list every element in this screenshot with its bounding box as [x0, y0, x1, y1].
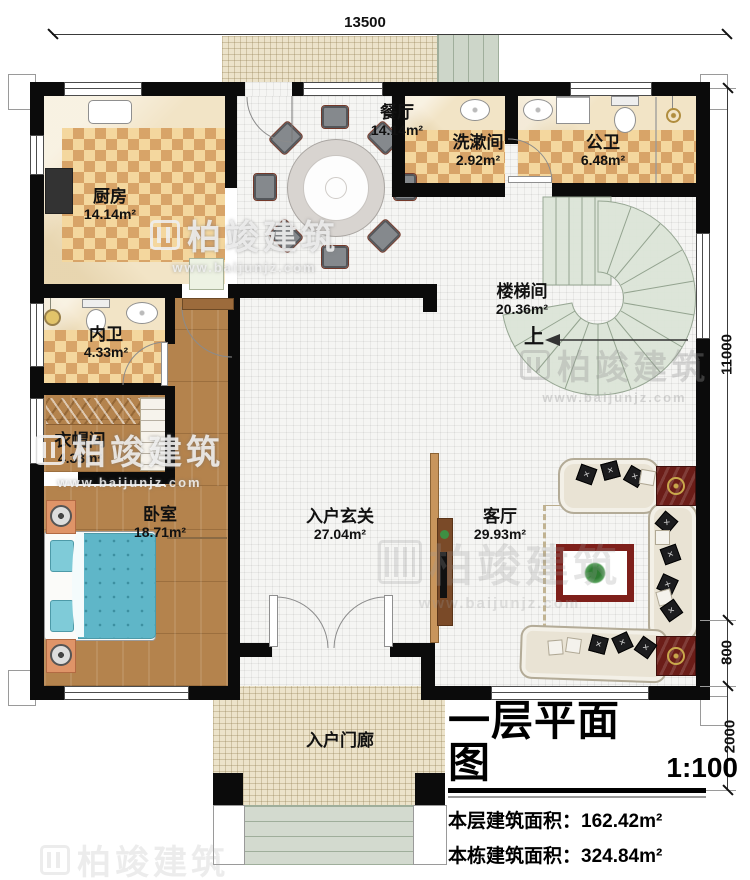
- wall: [696, 82, 710, 700]
- table-ring: [667, 647, 685, 665]
- room-label-public-bath: 公卫6.48m²: [545, 134, 661, 168]
- plant: [584, 562, 606, 584]
- watermark-logo-icon: [40, 845, 70, 875]
- public-toilet-bowl: [614, 107, 636, 133]
- tv: [440, 552, 447, 598]
- dining-chair: [254, 174, 276, 200]
- wall: [240, 643, 272, 657]
- fridge: [189, 258, 224, 290]
- wall: [552, 183, 696, 197]
- side-table: [656, 466, 696, 506]
- wall: [423, 284, 437, 312]
- wall: [78, 472, 165, 484]
- wall: [165, 386, 175, 484]
- bed-pillow: [50, 600, 74, 632]
- plan-scale: 1:100: [666, 752, 738, 784]
- washing-machine: [556, 96, 590, 124]
- public-bath-sink: [523, 99, 553, 121]
- washroom-sink: [460, 99, 490, 121]
- pillow: [639, 469, 656, 486]
- nightstand-lamp: [50, 644, 72, 666]
- dimension-label-right-upper: 11000: [719, 325, 736, 385]
- entry-door-leaf: [384, 595, 393, 647]
- steps-side-right: [413, 805, 447, 865]
- dimension-extension: [710, 88, 736, 89]
- porch-column: [213, 773, 243, 805]
- stat-total-area: 本栋建筑面积：324.84m²: [448, 841, 738, 868]
- cloak-shelf: [140, 397, 167, 471]
- room-label-kitchen: 厨房14.14m²: [50, 188, 170, 222]
- room-label-dining: 餐厅14.14m²: [337, 104, 457, 138]
- bath-lamp: [44, 309, 61, 326]
- pillow: [565, 637, 582, 654]
- dining-chair: [322, 246, 348, 268]
- dining-table-center: [325, 177, 347, 199]
- wall: [30, 284, 182, 298]
- wood-door-leaf: [182, 298, 234, 310]
- bed-duvet: [78, 533, 156, 639]
- window: [30, 135, 44, 175]
- private-bath-sink: [126, 302, 158, 324]
- room-label-porch: 入户门廊: [270, 732, 410, 750]
- pillow: [655, 530, 670, 545]
- door-leaf: [508, 176, 552, 183]
- window: [64, 686, 189, 700]
- wall: [30, 383, 165, 395]
- nightstand-lamp: [50, 505, 72, 527]
- room-label-washroom: 洗漱间2.92m²: [420, 134, 536, 168]
- window: [30, 303, 44, 367]
- wall: [228, 284, 240, 700]
- wall: [392, 183, 505, 197]
- duvet-fold: [72, 533, 84, 637]
- window: [64, 82, 142, 96]
- wall: [228, 284, 437, 298]
- window: [570, 82, 652, 96]
- bed-pillow: [50, 540, 74, 572]
- steps-side-left: [213, 805, 245, 865]
- entry-steps: [243, 805, 415, 865]
- kitchen-sink: [88, 100, 132, 124]
- floor-plan-canvas: 厨房14.14m² 餐厅14.14m² 洗漱间2.92m² 公卫6.48m² 楼…: [0, 0, 750, 880]
- entry-door-leaf: [269, 595, 278, 647]
- dimension-line-top: [52, 34, 728, 35]
- title-rule: [448, 796, 706, 798]
- shower-drain: [666, 108, 681, 123]
- title-rule: [448, 788, 706, 793]
- hanger-rod: [46, 398, 140, 425]
- stairs-up-label: 上: [524, 320, 544, 349]
- room-label-bedroom: 卧室18.71m²: [100, 506, 220, 540]
- room-label-stairwell: 楼梯间20.36m²: [462, 283, 582, 317]
- door-opening: [245, 82, 292, 96]
- public-toilet-tank: [611, 96, 639, 106]
- wall: [225, 96, 237, 188]
- window: [696, 233, 710, 339]
- wall: [165, 298, 175, 344]
- stat-floor-area: 本层建筑面积：162.42m²: [448, 806, 738, 833]
- side-table: [656, 636, 696, 676]
- porch-column: [415, 773, 445, 805]
- private-toilet-tank: [82, 299, 110, 308]
- title-block: 一层平面图 1:100 本层建筑面积：162.42m² 本栋建筑面积：324.8…: [448, 700, 738, 880]
- watermark: 柏竣建筑 www.baijunjz.com: [40, 835, 229, 880]
- dimension-label-top: 13500: [330, 14, 400, 31]
- table-ring: [667, 477, 685, 495]
- wall: [421, 643, 435, 686]
- pillow: [547, 639, 563, 655]
- room-label-private-bath: 内卫4.33m²: [48, 326, 164, 360]
- stat-footprint-area: 占地面积：187.51m²: [448, 876, 738, 880]
- plan-title: 一层平面图: [448, 700, 656, 784]
- room-label-cloakroom: 衣帽间4.33m²: [25, 432, 135, 466]
- window: [303, 82, 383, 96]
- room-label-foyer: 入户玄关27.04m²: [270, 508, 410, 542]
- dimension-label-right-middle: 800: [719, 628, 736, 678]
- room-label-living: 客厅29.93m²: [440, 508, 560, 542]
